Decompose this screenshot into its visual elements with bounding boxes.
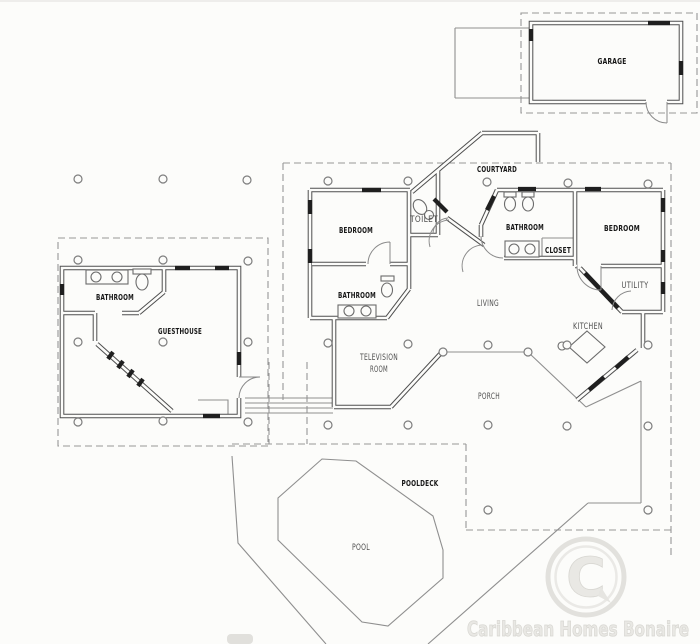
room-label-garage: GARAGE bbox=[598, 57, 627, 66]
room-label-guesthouse: GUESTHOUSE bbox=[158, 327, 202, 336]
floor-plan-svg: C Caribbean Homes Bonaire bbox=[0, 0, 700, 644]
room-label-bathroom-main: BATHROOM bbox=[338, 291, 376, 300]
room-label-television-room-line1: TELEVISION bbox=[359, 353, 398, 363]
room-label-porch: PORCH bbox=[478, 392, 500, 402]
scan-artifact bbox=[227, 634, 253, 644]
floor-plan-page: C Caribbean Homes Bonaire bbox=[0, 0, 700, 644]
logo-c-icon: C bbox=[566, 546, 606, 609]
room-label-pooldeck: POOLDECK bbox=[402, 479, 439, 488]
room-label-utility: UTILITY bbox=[622, 281, 649, 291]
room-label-closet: CLOSET bbox=[545, 246, 571, 255]
room-label-bedroom-master: BEDROOM bbox=[604, 224, 640, 233]
room-label-bedroom-left: BEDROOM bbox=[339, 226, 373, 235]
room-label-toilet: TOILET bbox=[409, 215, 438, 225]
room-label-courtyard: COURTYARD bbox=[477, 165, 517, 174]
room-label-bathroom-guesthouse: BATHROOM bbox=[96, 293, 134, 302]
room-label-pool: POOL bbox=[352, 543, 370, 553]
room-label-kitchen: KITCHEN bbox=[573, 322, 603, 332]
watermark-text: Caribbean Homes Bonaire bbox=[467, 617, 689, 641]
room-label-bathroom-master: BATHROOM bbox=[506, 223, 544, 232]
room-label-television-room-line2: ROOM bbox=[370, 365, 388, 375]
room-label-living: LIVING bbox=[477, 299, 499, 309]
scan-edge-top bbox=[0, 0, 700, 2]
